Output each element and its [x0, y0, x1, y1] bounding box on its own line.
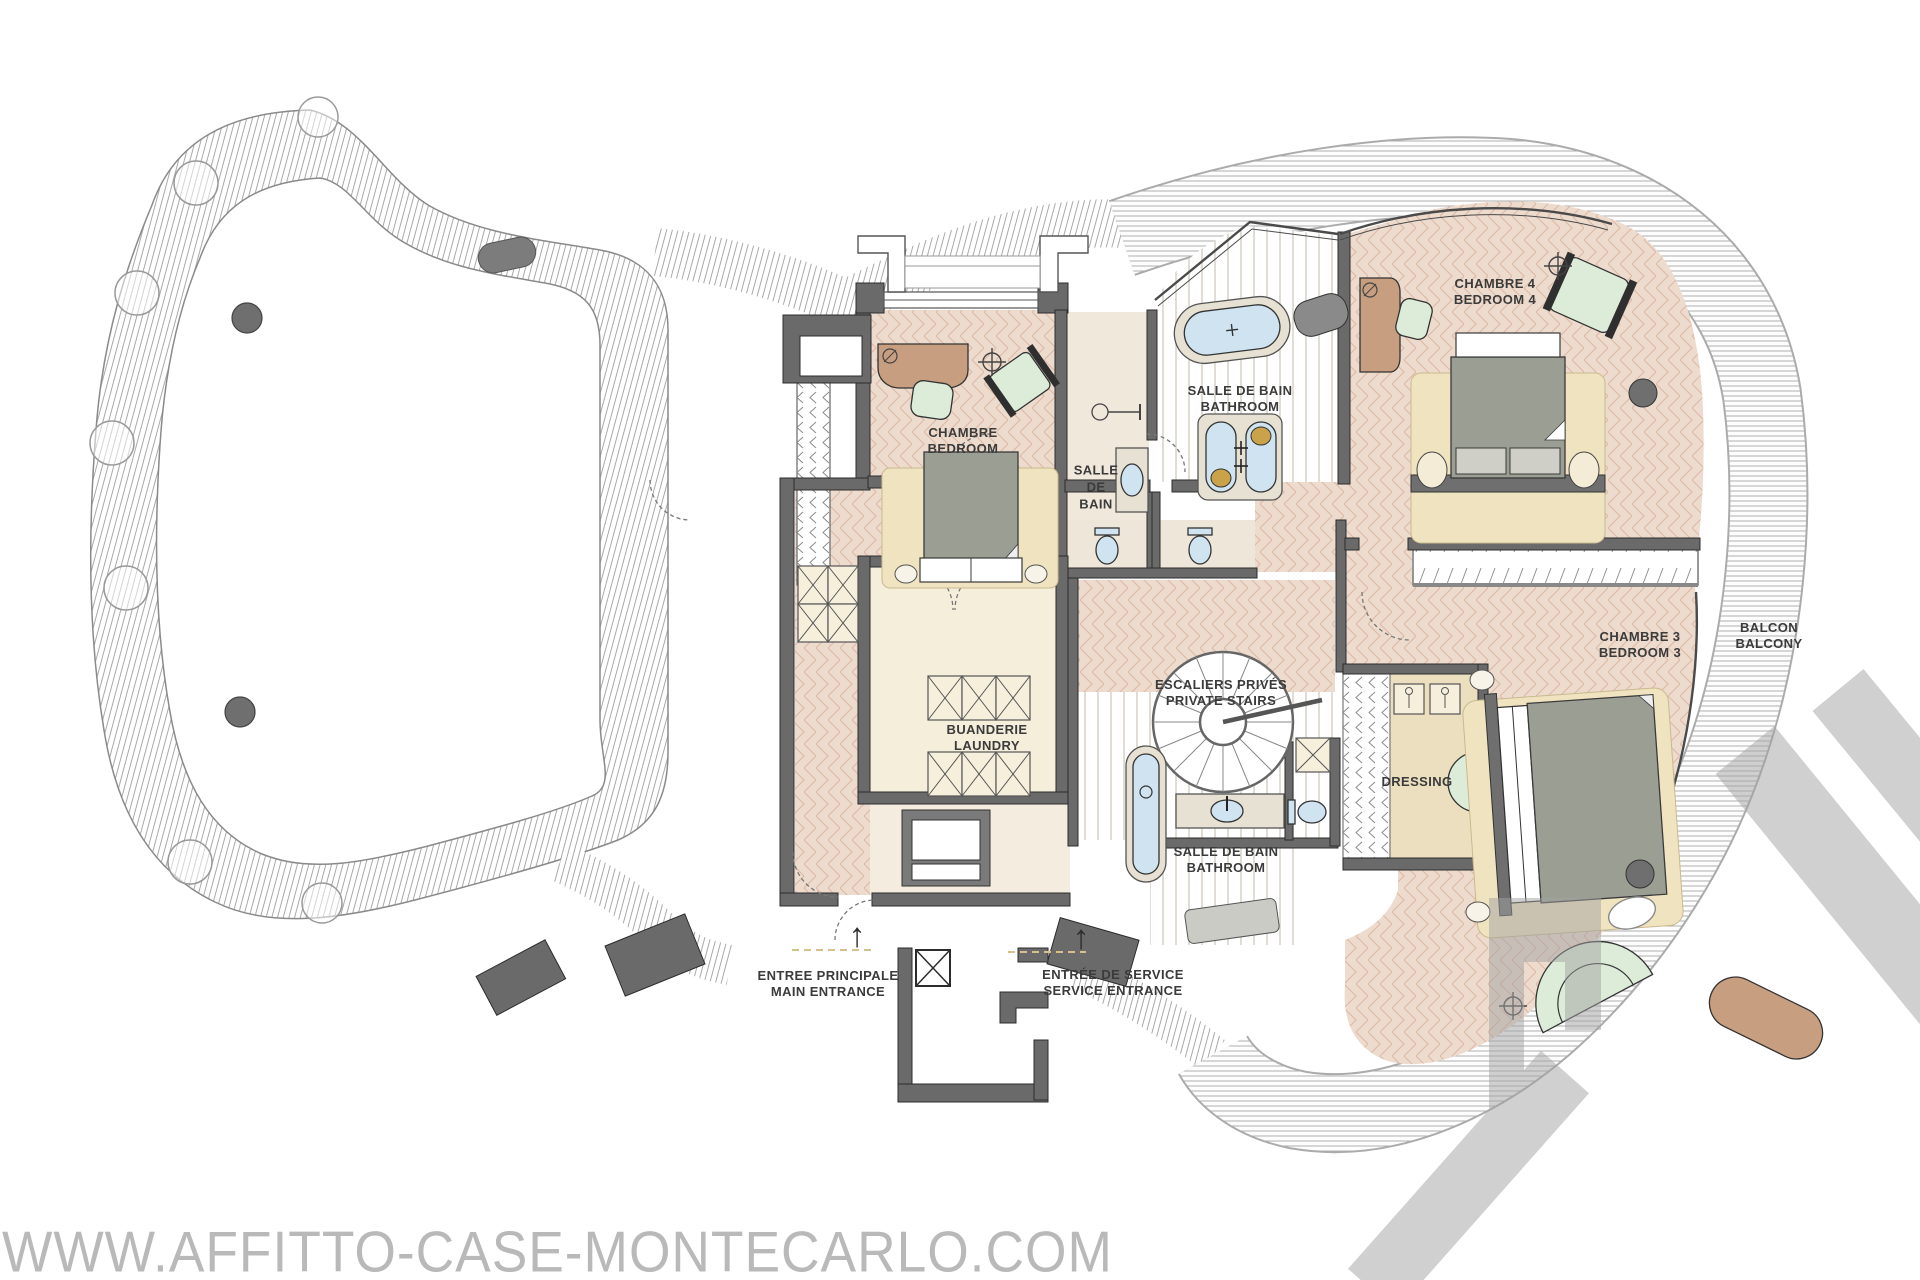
room-label-chambre: CHAMBREBEDROOM [928, 425, 999, 457]
room-label-bathroom-top: SALLE DE BAINBATHROOM [1188, 383, 1293, 415]
label-entree-principale: ENTREE PRINCIPALEMAIN ENTRANCE [758, 968, 899, 1000]
hall-cabinets [798, 566, 858, 642]
toilet-2 [1188, 528, 1212, 564]
room-label-salle-de-bain-small: SALLEDEBAIN [1074, 462, 1119, 513]
service-entrance-arrow-icon: ↑ [1073, 919, 1090, 958]
site-watermark: WWW.AFFITTO-CASE-MONTECARLO.COM [2, 1218, 1113, 1280]
label-entree-service: ENTRÉE DE SERVICESERVICE ENTRANCE [1042, 967, 1184, 999]
toilet-1 [1095, 528, 1119, 564]
room-label-balcon: BALCONBALCONY [1735, 620, 1802, 652]
toilet-3 [1288, 800, 1326, 824]
room-label-buanderie: BUANDERIELAUNDRY [947, 722, 1028, 754]
floor-plan-canvas: CHAMBREBEDROOM SALLEDEBAIN SALLE DE BAIN… [0, 0, 1920, 1280]
room-label-chambre3: CHAMBRE 3BEDROOM 3 [1599, 629, 1681, 661]
room-label-chambre4: CHAMBRE 4BEDROOM 4 [1454, 276, 1536, 308]
elevator-shaft [916, 950, 950, 986]
room-label-bathroom-lower: SALLE DE BAINBATHROOM [1174, 844, 1279, 876]
main-entrance-arrow-icon: ↑ [849, 917, 866, 956]
room-label-dressing: DRESSING [1381, 774, 1452, 790]
room-label-escaliers: ESCALIERS PRIVÉSPRIVATE STAIRS [1155, 677, 1287, 709]
